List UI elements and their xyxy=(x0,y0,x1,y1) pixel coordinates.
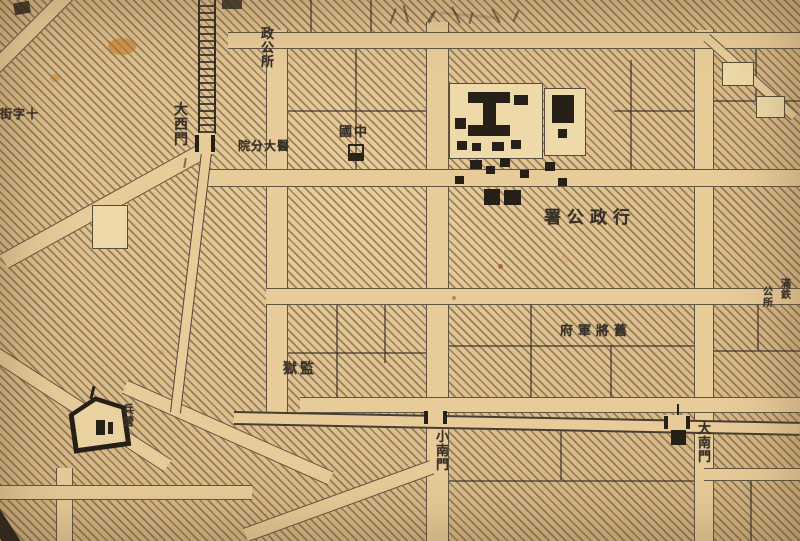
street-southeast xyxy=(704,468,800,481)
label-zhongguo: 國中 xyxy=(339,126,369,140)
block-line xyxy=(286,352,426,354)
block-line xyxy=(755,47,757,100)
east-hall-annex xyxy=(558,129,567,138)
block-line xyxy=(447,345,694,347)
main-hall-building xyxy=(468,125,510,136)
small-courtyard-northeast-2 xyxy=(756,96,785,118)
street-bottom-left xyxy=(0,485,252,500)
label-char: 門 xyxy=(436,459,449,473)
admin-office-building xyxy=(504,190,521,205)
small-building xyxy=(520,170,529,178)
barracks-inner-building xyxy=(96,420,105,435)
label-char: 大 xyxy=(698,423,711,437)
block-line xyxy=(610,345,612,398)
city-blocks-hatching xyxy=(0,0,800,541)
small-building xyxy=(470,160,482,169)
barracks-inner-building xyxy=(108,422,113,434)
label-old-general-residence: 府軍將舊 xyxy=(560,325,632,339)
block-line xyxy=(286,110,426,112)
block-line xyxy=(384,303,386,363)
label-char: 南 xyxy=(698,437,711,451)
label-char: 所 xyxy=(261,56,274,70)
block-line xyxy=(712,350,800,352)
great-south-gate-tower xyxy=(671,428,686,445)
label-char: 營 xyxy=(123,416,134,428)
label-char: 南 xyxy=(436,445,449,459)
ink-blob-top-center xyxy=(222,0,242,9)
label-char: 小 xyxy=(436,431,449,445)
street-west-main xyxy=(266,30,288,412)
label-barracks: 兵營 xyxy=(123,404,134,428)
compound-building xyxy=(514,95,528,105)
block-line xyxy=(614,110,694,112)
block-line xyxy=(336,303,338,398)
label-medical-branch: 院分大醫 xyxy=(238,140,290,153)
east-hall-building xyxy=(552,95,574,123)
orange-stain xyxy=(50,74,61,82)
label-char: 西 xyxy=(174,118,188,133)
street-daximen-inner xyxy=(206,169,800,187)
street-small-southwest xyxy=(56,468,73,541)
block-line xyxy=(630,60,632,169)
small-building xyxy=(558,178,567,186)
label-cross-street: 街字十 xyxy=(0,108,39,121)
small-courtyard-west xyxy=(92,205,128,249)
block-line xyxy=(310,0,312,32)
compound-building xyxy=(457,141,467,150)
great-south-gate-opening xyxy=(664,415,690,430)
red-dot-stain xyxy=(498,264,503,269)
label-gate-dananmen: 大南門 xyxy=(698,423,711,465)
label-char: 大 xyxy=(174,103,188,118)
street-along-south-wall xyxy=(300,397,800,413)
label-char: 鉄 xyxy=(781,291,791,302)
label-char: 公 xyxy=(261,42,274,56)
admin-office-building xyxy=(484,189,500,205)
street-middle xyxy=(266,288,800,305)
city-wall-west-railway xyxy=(198,0,216,134)
label-prison: 獄監 xyxy=(283,362,317,377)
orange-stain xyxy=(158,350,164,355)
block-line xyxy=(530,303,532,398)
main-hall-building xyxy=(483,101,496,127)
label-char: 門 xyxy=(698,451,711,465)
small-courtyard-northeast-1 xyxy=(722,62,754,86)
west-gate-opening xyxy=(195,133,215,154)
small-building xyxy=(500,158,510,167)
label-gate-xiaonanmen: 小南門 xyxy=(436,431,449,473)
orange-stain xyxy=(108,38,136,55)
label-gate-daximen: 大西門 xyxy=(174,103,188,148)
compound-building xyxy=(511,140,521,149)
block-line xyxy=(757,303,759,350)
label-mantetsu-office-left: 公所 xyxy=(763,288,773,310)
small-building xyxy=(486,166,495,174)
block-line xyxy=(750,479,752,541)
small-building xyxy=(455,176,464,184)
shrine-icon xyxy=(348,144,364,161)
label-char: 所 xyxy=(763,299,773,310)
compound-building xyxy=(455,118,466,129)
small-south-gate-opening xyxy=(424,410,447,425)
block-line xyxy=(370,0,372,32)
label-char: 政 xyxy=(261,28,274,42)
pale-stain xyxy=(560,255,570,263)
label-zhenggongsuo: 政公所 xyxy=(261,28,274,70)
city-map: 大西門政公所院分大醫國中署公政行府軍將舊獄監小南門大南門兵營街字十滿鉄公所 xyxy=(0,0,800,541)
label-mantetsu-office-right: 滿鉄 xyxy=(781,280,791,302)
block-line xyxy=(560,424,562,480)
block-line xyxy=(447,480,694,482)
small-building xyxy=(545,162,555,171)
label-char: 門 xyxy=(174,133,188,148)
label-admin-office: 署公政行 xyxy=(544,209,636,227)
red-dot-stain xyxy=(452,296,456,300)
compound-building xyxy=(492,142,504,151)
compound-building xyxy=(472,143,481,151)
